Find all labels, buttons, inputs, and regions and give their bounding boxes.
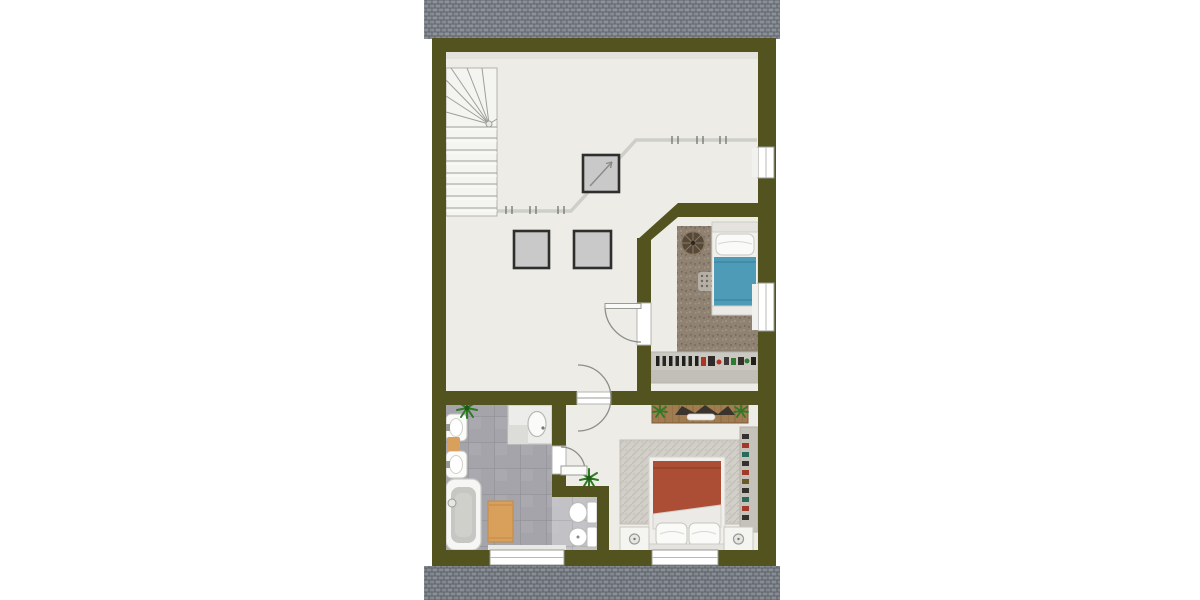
staircase-winder xyxy=(446,68,497,216)
door-leaf xyxy=(561,466,587,475)
wall-attic-south-left xyxy=(446,391,577,405)
sink xyxy=(446,414,467,441)
bidet xyxy=(569,527,597,547)
pillow xyxy=(656,523,687,546)
roof-shingles-top xyxy=(424,0,780,39)
shower xyxy=(508,405,552,444)
pillow xyxy=(689,523,720,546)
nightstand-right xyxy=(724,527,753,552)
wall-attic-south-right xyxy=(611,391,758,405)
skylight xyxy=(574,231,611,268)
single-bed-blue xyxy=(712,222,758,315)
wall-bedroomtop-west-upper xyxy=(637,238,651,305)
wall-bath-east-upper xyxy=(552,405,566,446)
window xyxy=(652,550,718,565)
shelf-with-books xyxy=(651,352,758,383)
window xyxy=(490,550,564,565)
skylight-with-arrow xyxy=(583,155,619,192)
wall-shelf xyxy=(740,427,758,532)
wall-bottom xyxy=(432,550,776,566)
wall-bedroomtop-west-lower xyxy=(637,343,651,391)
window xyxy=(752,283,774,331)
orange-mat-small xyxy=(447,437,460,451)
faucet xyxy=(448,499,456,507)
window xyxy=(752,147,774,178)
wall-niche-north xyxy=(552,486,609,497)
wall-niche-east xyxy=(597,497,609,550)
wall-bath-east-stub xyxy=(552,474,566,488)
round-rug xyxy=(682,232,705,255)
floor-plan-svg xyxy=(0,0,1200,600)
wall-shadow xyxy=(446,52,758,59)
double-bed-red xyxy=(649,457,725,552)
roof-shingles-bottom xyxy=(424,566,780,600)
toilet xyxy=(569,502,597,523)
bathtub xyxy=(446,479,481,550)
door-leaf xyxy=(605,304,641,309)
pillow xyxy=(716,234,754,255)
wall-left xyxy=(432,38,446,566)
wall-bedroomtop-north xyxy=(678,203,758,217)
nightstand-left xyxy=(620,527,649,552)
blue-duvet xyxy=(714,257,756,306)
orange-bath-mat xyxy=(488,501,513,542)
wall-top xyxy=(432,38,776,52)
sink xyxy=(446,451,467,478)
floor-plan-image xyxy=(0,0,1200,600)
skylight xyxy=(514,231,549,268)
